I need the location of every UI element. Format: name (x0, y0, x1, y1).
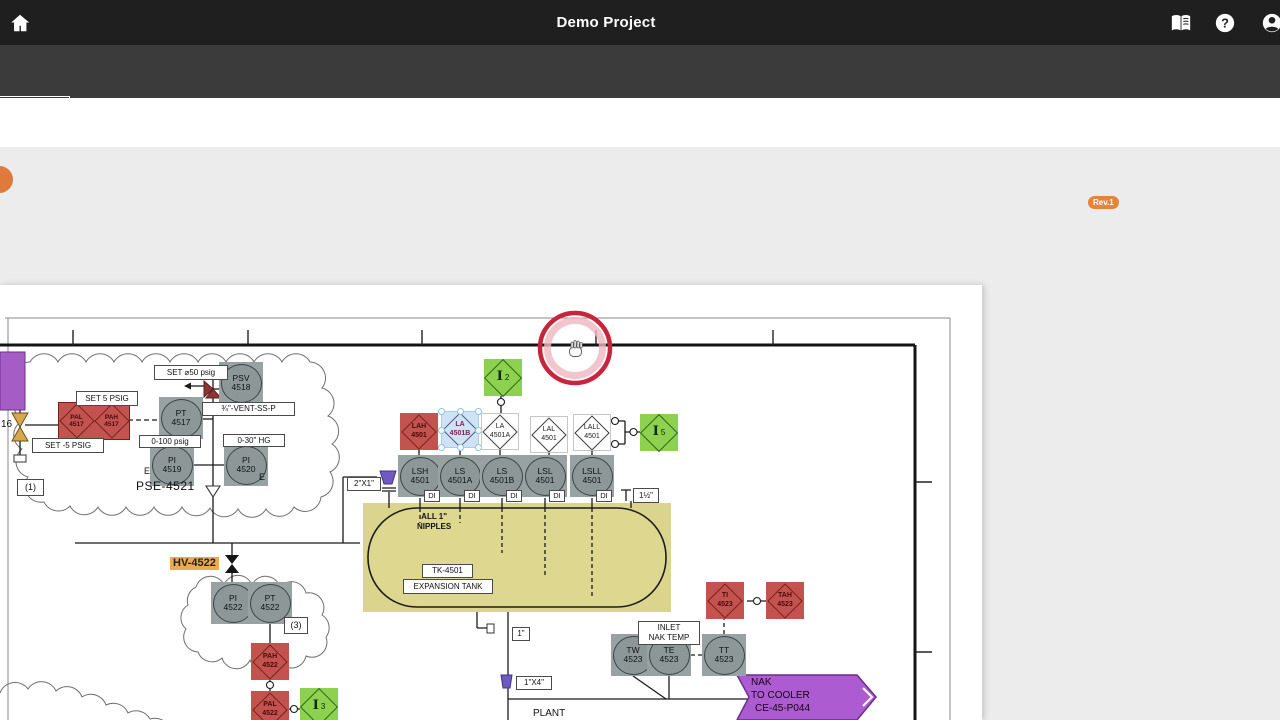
alarm-la-4501b-selected[interactable]: LA4501B (441, 411, 479, 448)
label-set-5-psig: SET 5 PSIG (76, 391, 138, 406)
drain-cap (487, 624, 494, 633)
label-inlet-nak-temp: INLETNAK TEMP (638, 621, 700, 645)
pid-sheet[interactable]: PT4517 PSV4518 PI4519 PI4520 LSH4501 LS4… (0, 285, 982, 720)
label-di-5: DI (596, 490, 612, 502)
reducer-1x4[interactable] (501, 675, 512, 688)
instrument-pt-4517[interactable]: PT4517 (159, 397, 203, 439)
revision-badge: Rev.1 (1088, 196, 1119, 209)
label-expansion-tank: EXPANSION TANK (403, 579, 493, 594)
alarm-pair-4517[interactable]: PAL4517 PAH4517 (58, 402, 130, 440)
label-tk-4501: TK-4501 (422, 564, 473, 578)
label-hv-4522[interactable]: HV-4522 (170, 557, 219, 570)
label-plant: PLANT (533, 709, 565, 719)
reducer-2x1[interactable] (380, 471, 396, 484)
label-di-2: DI (464, 490, 480, 502)
library-book-icon[interactable] (1170, 12, 1192, 34)
instrument-tt-4523[interactable]: TT4523 (702, 634, 746, 676)
banner-line-1: NAK (751, 678, 772, 688)
label-valve-16: 16 (1, 420, 12, 430)
label-set-50-psig: SET ⌀50 psig (154, 365, 228, 380)
floating-action-button[interactable] (0, 166, 13, 193)
top-bar: Demo Project ? (0, 0, 1280, 45)
label-1x4: 1"X4" (516, 676, 552, 690)
label-1-5in: 1½" (633, 488, 659, 503)
label-range-0-30: 0-30" HG (223, 434, 285, 447)
alarm-lah-4501[interactable]: LAH4501 (400, 413, 438, 450)
interlock-i3[interactable]: I3 (300, 688, 338, 720)
flow-arrow (184, 383, 191, 390)
label-pse-4521: PSE-4521 (136, 480, 195, 492)
label-1in: 1" (512, 627, 530, 641)
app-window: Demo Project ? SYMBOLS TABLES TEXT Save … (0, 0, 1280, 720)
alarm-lal-4501[interactable]: LAL4501 (530, 416, 568, 453)
banner-line-3: CE-45-P044 (755, 704, 810, 714)
label-di-3: DI (506, 490, 522, 502)
label-set-minus5-psig: SET -5 PSIG (32, 438, 104, 453)
drawing-canvas[interactable]: PT4517 PSV4518 PI4519 PI4520 LSH4501 LS4… (0, 147, 1280, 720)
project-title: Demo Project (0, 0, 1212, 45)
label-di-1: DI (424, 490, 440, 502)
interlock-i2[interactable]: I2 (484, 359, 522, 396)
label-note-1: (1) (17, 479, 44, 496)
label-e-1: E (144, 467, 150, 476)
interlock-i5[interactable]: I5 (640, 414, 678, 451)
label-2x1: 2"X1" (347, 477, 381, 491)
diagram-linework (0, 285, 982, 720)
label-note-3: (3) (284, 617, 308, 634)
alarm-pah-4522[interactable]: PAH4522 (251, 643, 289, 680)
hand-cursor-icon (570, 341, 583, 357)
label-all-1in-nipples: ALL 1"NIPPLES (417, 512, 451, 532)
label-range-0-100: 0-100 psig (139, 435, 201, 448)
valve-hv4522[interactable] (225, 555, 239, 573)
help-icon[interactable]: ? (1214, 12, 1236, 34)
alarm-pal-4517[interactable]: PAL4517 (59, 403, 94, 439)
label-di-4: DI (549, 490, 565, 502)
account-icon[interactable] (1261, 12, 1280, 34)
alarm-la-4501a[interactable]: LA4501A (481, 413, 519, 450)
label-e-2: E (259, 473, 265, 482)
toolbar: Annotate Group Merge Coverage (0, 98, 1280, 148)
valve-16[interactable] (12, 413, 28, 441)
alarm-tah-4523[interactable]: TAH4523 (766, 582, 804, 619)
pse-triangle (206, 486, 220, 497)
offsheet-connector-left[interactable] (0, 352, 25, 410)
tab-bar: SYMBOLS TABLES TEXT Save as template (0, 45, 1280, 98)
expansion-tank-symbol[interactable] (363, 503, 671, 612)
label-vent-line: ¾"-VENT-SS-P (202, 402, 295, 416)
bleed-valve (14, 455, 26, 462)
svg-text:?: ? (1221, 16, 1229, 31)
alarm-pal-4522[interactable]: PAL4522 (251, 691, 289, 720)
alarm-lall-4501[interactable]: LALL4501 (573, 414, 611, 451)
alarm-pah-4517[interactable]: PAH4517 (94, 403, 129, 439)
banner-line-2: TO COOLER (751, 691, 810, 701)
alarm-ti-4523[interactable]: TI4523 (706, 582, 744, 619)
